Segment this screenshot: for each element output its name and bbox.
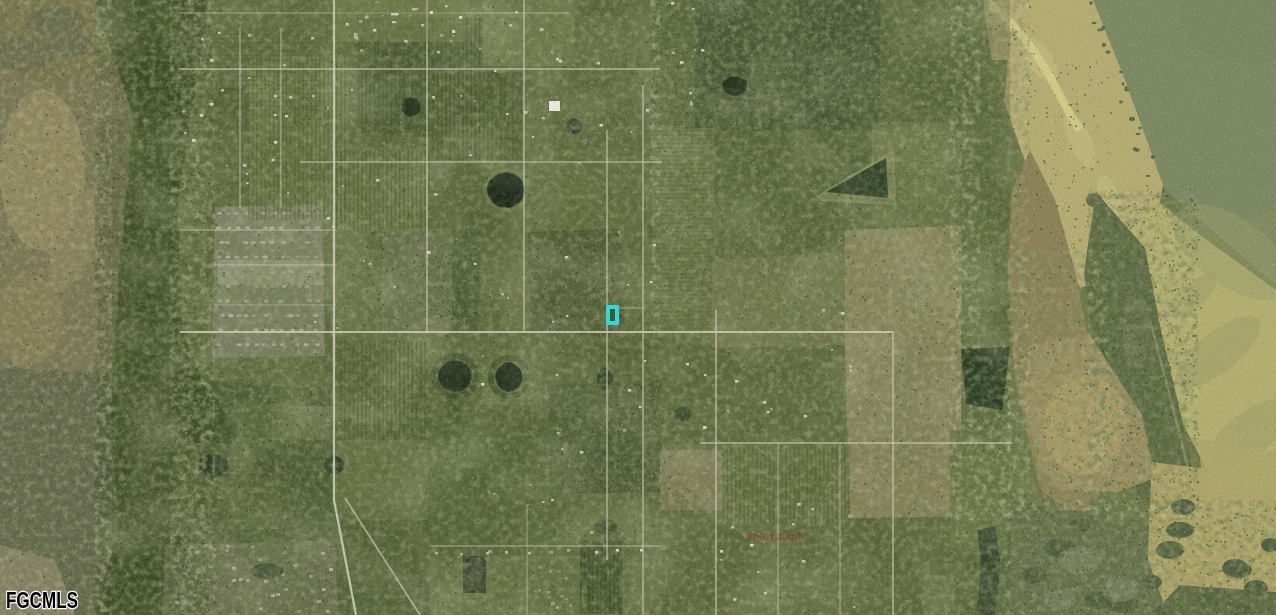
svg-text:FGCMLS: FGCMLS xyxy=(6,587,78,613)
svg-text:PINE ISLAND: PINE ISLAND xyxy=(747,533,804,543)
